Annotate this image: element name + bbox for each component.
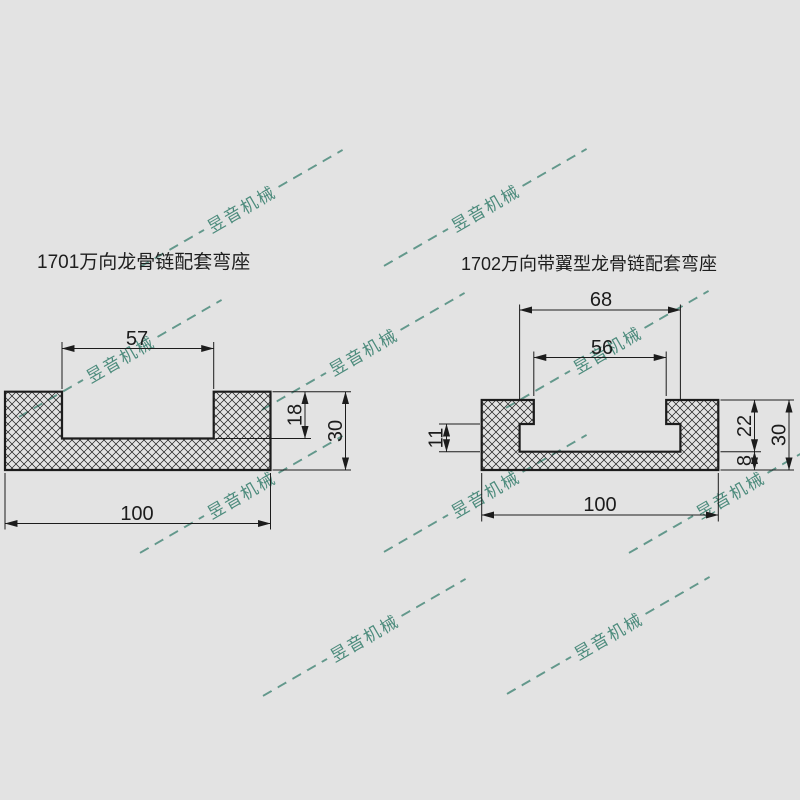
dim-text-8: 8 (734, 455, 756, 466)
profile-drawing-1701: 57 100 18 30 (0, 325, 360, 535)
dim-base-width-100: 100 (482, 473, 719, 522)
dim-text-18: 18 (285, 404, 307, 426)
watermark-dash-line (506, 656, 571, 695)
watermark-dash-line (401, 578, 466, 617)
dim-total-height-30: 30 (325, 392, 347, 470)
watermark-text: 昱音机械 (198, 176, 285, 241)
watermark-dash-line (522, 148, 587, 187)
watermark-text: 昱音机械 (565, 603, 652, 668)
channel-profile-section (5, 392, 271, 470)
dim-text-22: 22 (734, 415, 756, 437)
dim-text-30: 30 (769, 424, 791, 446)
watermark-tile: 昱音机械 (256, 568, 471, 707)
watermark-dash-line (645, 576, 710, 615)
dim-total-height-30: 30 (769, 400, 791, 470)
dim-base-width-100: 100 (5, 473, 271, 530)
dim-text-57: 57 (126, 328, 148, 350)
drawing-title-1701: 1701万向龙骨链配套弯座 (37, 247, 250, 274)
dim-text-100: 100 (583, 494, 616, 516)
dim-base-thickness-8: 8 (734, 452, 756, 470)
dim-upper-height-22: 22 (734, 400, 756, 452)
dim-text-56: 56 (591, 337, 613, 359)
dim-groove-depth-18: 18 (285, 392, 307, 439)
watermark-dash-line (262, 658, 327, 697)
winged-channel-profile-section (482, 400, 719, 470)
profile-drawing-1702: 68 56 11 100 22 8 (400, 285, 800, 530)
watermark-dash-line (383, 228, 448, 267)
dim-wing-gap-56: 56 (534, 337, 666, 396)
watermark-tile: 昱音机械 (500, 566, 715, 705)
dim-text-100: 100 (120, 503, 153, 525)
dim-side-step-11: 11 (426, 424, 481, 452)
drawing-title-1702: 1702万向带翼型龙骨链配套弯座 (461, 250, 717, 276)
dim-text-68: 68 (590, 289, 612, 311)
dim-text-11: 11 (426, 428, 448, 449)
drawing-canvas: 昱音机械 昱音机械 昱音机械 昱音机械 昱音机械 昱音机械 昱音机械 昱音机械 (0, 0, 800, 800)
watermark-text: 昱音机械 (442, 175, 529, 240)
watermark-text: 昱音机械 (321, 605, 408, 670)
dim-opening-width-57: 57 (62, 328, 214, 389)
dim-text-30: 30 (325, 420, 347, 442)
watermark-dash-line (278, 149, 343, 188)
